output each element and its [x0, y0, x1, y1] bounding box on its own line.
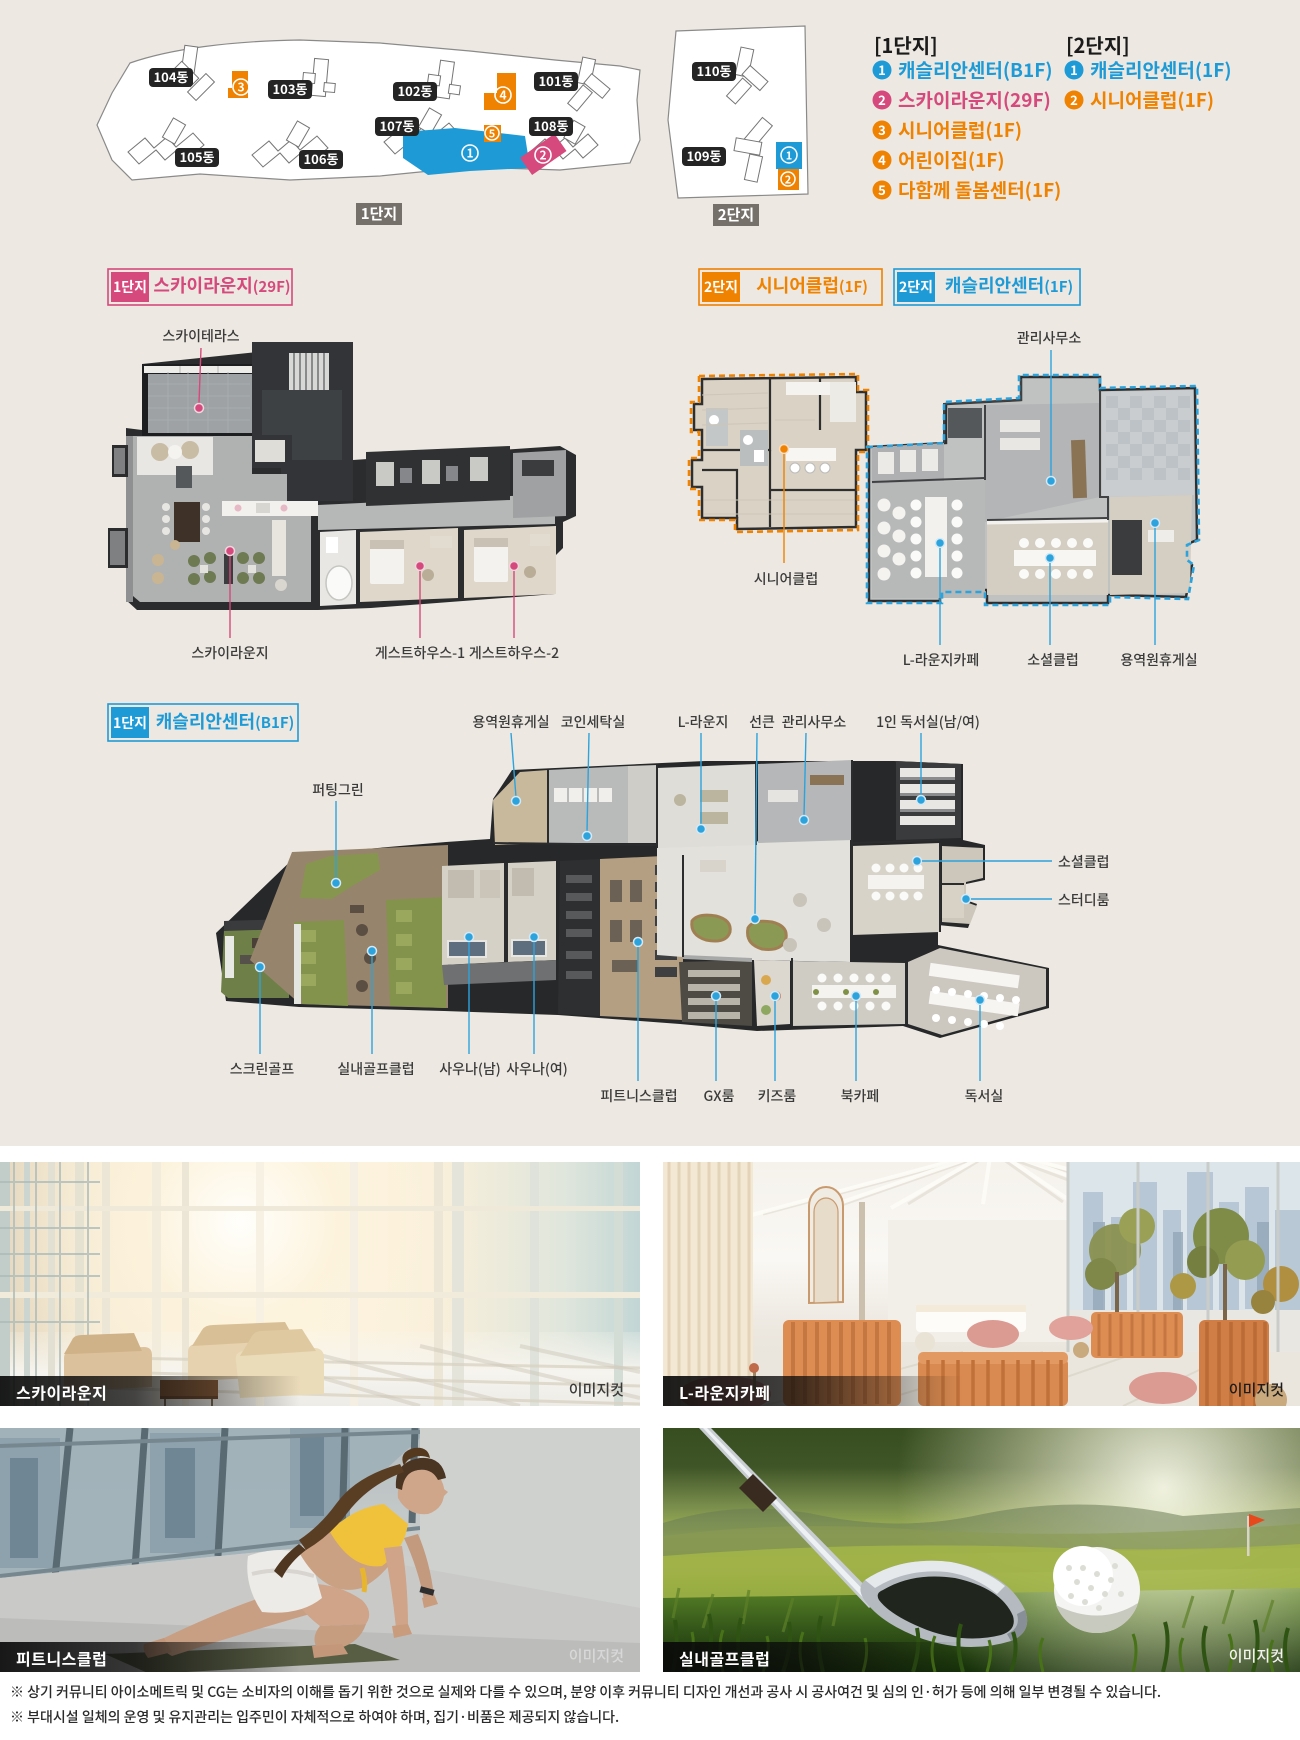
svg-text:1: 1 — [786, 148, 793, 164]
svg-text:[1단지]: [1단지] — [874, 30, 938, 59]
svg-text:퍼팅그린: 퍼팅그린 — [312, 780, 364, 800]
svg-text:3: 3 — [878, 120, 886, 139]
svg-text:110동: 110동 — [697, 61, 732, 80]
svg-text:소셜클럽: 소셜클럽 — [1027, 650, 1079, 670]
svg-text:101동: 101동 — [539, 71, 574, 90]
svg-text:2: 2 — [878, 90, 886, 109]
svg-text:게스트하우스-2: 게스트하우스-2 — [469, 643, 559, 663]
svg-text:1: 1 — [1070, 60, 1078, 79]
svg-text:1: 1 — [466, 145, 473, 162]
svg-text:L-라운지: L-라운지 — [678, 712, 729, 732]
svg-text:2단지: 2단지 — [704, 277, 738, 297]
svg-text:시니어클럽(1F): 시니어클럽(1F) — [898, 116, 1022, 143]
svg-text:용역원휴게실: 용역원휴게실 — [1120, 650, 1197, 670]
svg-text:104동: 104동 — [154, 67, 189, 86]
svg-text:캐슬리안센터(1F): 캐슬리안센터(1F) — [1090, 56, 1232, 83]
svg-text:5: 5 — [878, 180, 886, 199]
svg-text:다함께 돌봄센터(1F): 다함께 돌봄센터(1F) — [898, 176, 1061, 203]
svg-text:어린이집(1F): 어린이집(1F) — [898, 146, 1005, 173]
svg-text:2: 2 — [785, 172, 792, 188]
svg-text:[2단지]: [2단지] — [1066, 30, 1130, 59]
svg-text:사우나(남): 사우나(남) — [439, 1059, 501, 1079]
svg-text:1인 독서실(남/여): 1인 독서실(남/여) — [876, 712, 980, 732]
svg-text:선큰: 선큰 — [749, 712, 775, 732]
svg-text:시니어클럽: 시니어클럽 — [754, 569, 818, 589]
svg-text:독서실: 독서실 — [965, 1086, 1004, 1106]
svg-text:관리사무소: 관리사무소 — [782, 712, 847, 732]
svg-text:캐슬리안센터(B1F): 캐슬리안센터(B1F) — [156, 708, 295, 734]
svg-text:5: 5 — [489, 126, 496, 142]
svg-text:스크린골프: 스크린골프 — [230, 1059, 295, 1079]
svg-text:캐슬리안센터(B1F): 캐슬리안센터(B1F) — [898, 56, 1053, 83]
svg-text:스터디룸: 스터디룸 — [1058, 890, 1110, 910]
svg-text:108동: 108동 — [534, 116, 569, 135]
svg-text:4: 4 — [878, 150, 886, 169]
svg-text:4: 4 — [499, 87, 506, 104]
svg-text:북카페: 북카페 — [841, 1086, 880, 1106]
svg-text:103동: 103동 — [273, 79, 308, 98]
svg-text:스카이라운지(29F): 스카이라운지(29F) — [153, 272, 290, 298]
svg-text:109동: 109동 — [687, 146, 722, 165]
svg-text:용역원휴게실: 용역원휴게실 — [472, 712, 549, 732]
svg-text:시니어클럽(1F): 시니어클럽(1F) — [1090, 86, 1214, 113]
svg-text:102동: 102동 — [398, 81, 433, 100]
svg-text:게스트하우스-1: 게스트하우스-1 — [375, 643, 465, 663]
svg-text:코인세탁실: 코인세탁실 — [561, 712, 625, 732]
svg-text:사우나(여): 사우나(여) — [506, 1059, 568, 1079]
svg-text:2단지: 2단지 — [899, 277, 933, 297]
svg-text:시니어클럽(1F): 시니어클럽(1F) — [756, 272, 868, 298]
svg-text:GX룸: GX룸 — [703, 1086, 734, 1106]
svg-text:L-라운지카페: L-라운지카페 — [903, 650, 979, 670]
svg-text:3: 3 — [237, 79, 244, 96]
svg-text:2단지: 2단지 — [718, 204, 754, 225]
svg-text:실내골프클럽: 실내골프클럽 — [337, 1059, 414, 1079]
svg-text:키즈룸: 키즈룸 — [758, 1086, 797, 1106]
svg-text:1단지: 1단지 — [113, 713, 147, 733]
svg-text:105동: 105동 — [180, 147, 215, 166]
svg-text:캐슬리안센터(1F): 캐슬리안센터(1F) — [945, 272, 1073, 298]
svg-text:스카이라운지(29F): 스카이라운지(29F) — [898, 86, 1051, 113]
svg-text:2: 2 — [539, 147, 546, 164]
svg-text:관리사무소: 관리사무소 — [1017, 328, 1082, 348]
svg-text:소셜클럽: 소셜클럽 — [1058, 852, 1110, 872]
svg-text:107동: 107동 — [380, 116, 415, 135]
svg-text:1: 1 — [878, 60, 886, 79]
svg-text:1단지: 1단지 — [361, 203, 397, 224]
svg-text:2: 2 — [1070, 90, 1078, 109]
svg-text:피트니스클럽: 피트니스클럽 — [600, 1086, 677, 1106]
svg-text:스카이라운지: 스카이라운지 — [191, 643, 268, 663]
svg-text:1단지: 1단지 — [113, 277, 147, 297]
svg-text:106동: 106동 — [304, 149, 339, 168]
svg-text:스카이테라스: 스카이테라스 — [162, 326, 239, 346]
